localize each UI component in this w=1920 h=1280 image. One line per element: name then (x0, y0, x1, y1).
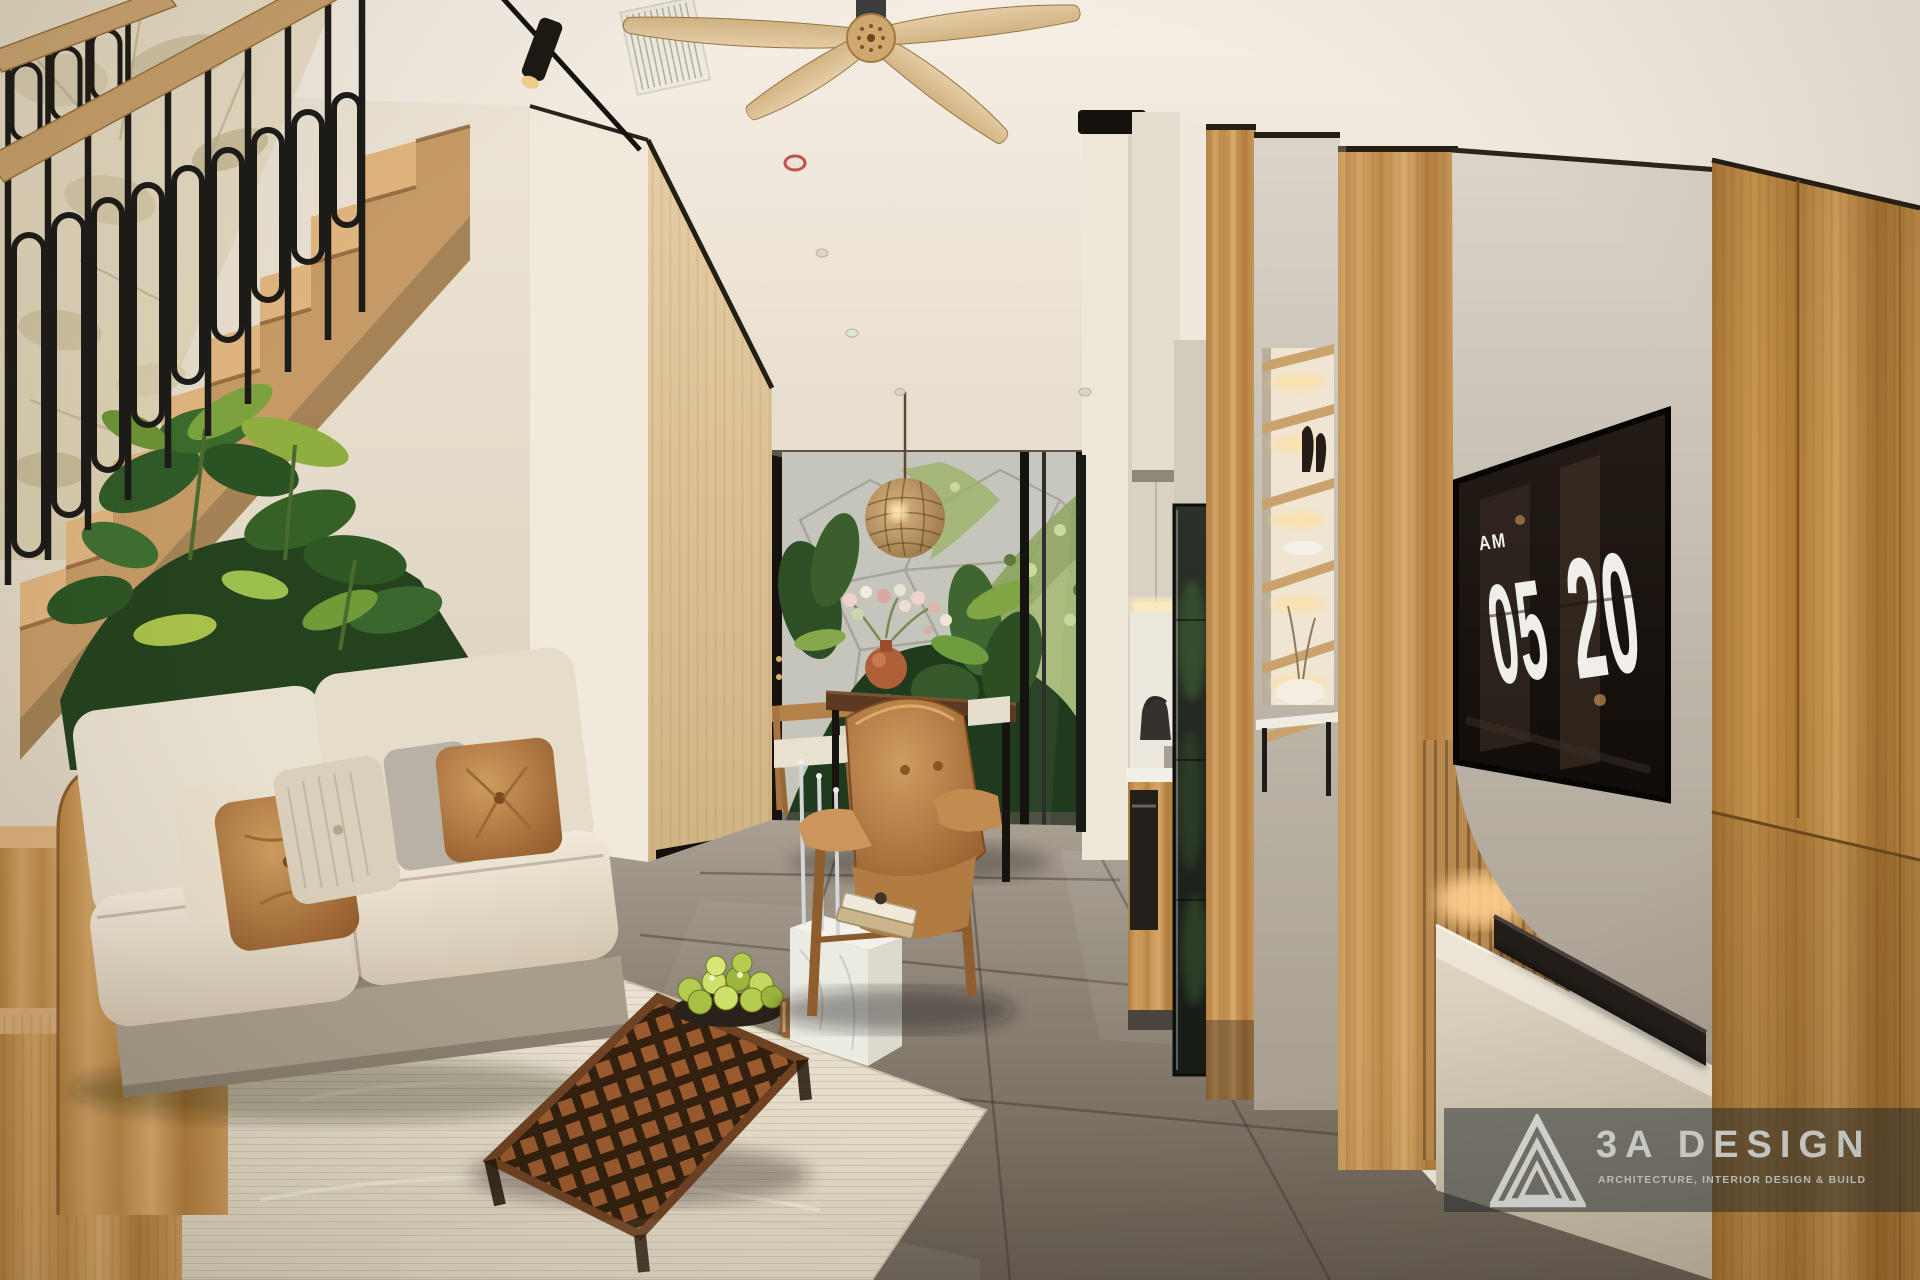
ceiling-fascia (770, 388, 1112, 458)
brand-tagline: ARCHITECTURE, INTERIOR DESIGN & BUILD (1598, 1174, 1866, 1186)
ceiling-vent (620, 0, 710, 95)
armchair-arm-right (934, 789, 1002, 832)
niche-decor-cushion (1276, 679, 1324, 705)
niche-decor-bowl (1283, 541, 1323, 555)
clock-meridiem: AM (1477, 530, 1508, 557)
smoke-detector-icon (785, 156, 805, 170)
watermark-band: 3A DESIGN ARCHITECTURE, INTERIOR DESIGN … (1444, 1108, 1920, 1212)
dining-chair (968, 696, 1010, 726)
triangle-logo-icon (1490, 1114, 1586, 1208)
pillow-cognac-tufted (434, 736, 563, 864)
brand-name: 3A DESIGN (1596, 1124, 1871, 1167)
clock-hours: 05 (1482, 575, 1554, 693)
tv-flip-clock: AM 05 20 (1474, 507, 1716, 706)
wood-pillar-left (1206, 124, 1256, 1100)
clock-minutes: 20 (1560, 545, 1646, 687)
shelf-niche-column (1254, 132, 1340, 1110)
pillow-greige (271, 753, 403, 906)
interior-render-living-room: AM 05 20 3A DESIGN ARCHITECTURE, INTERIO… (0, 0, 1920, 1280)
door-handle-icon (776, 656, 782, 662)
built-in-appliance (1130, 790, 1158, 930)
